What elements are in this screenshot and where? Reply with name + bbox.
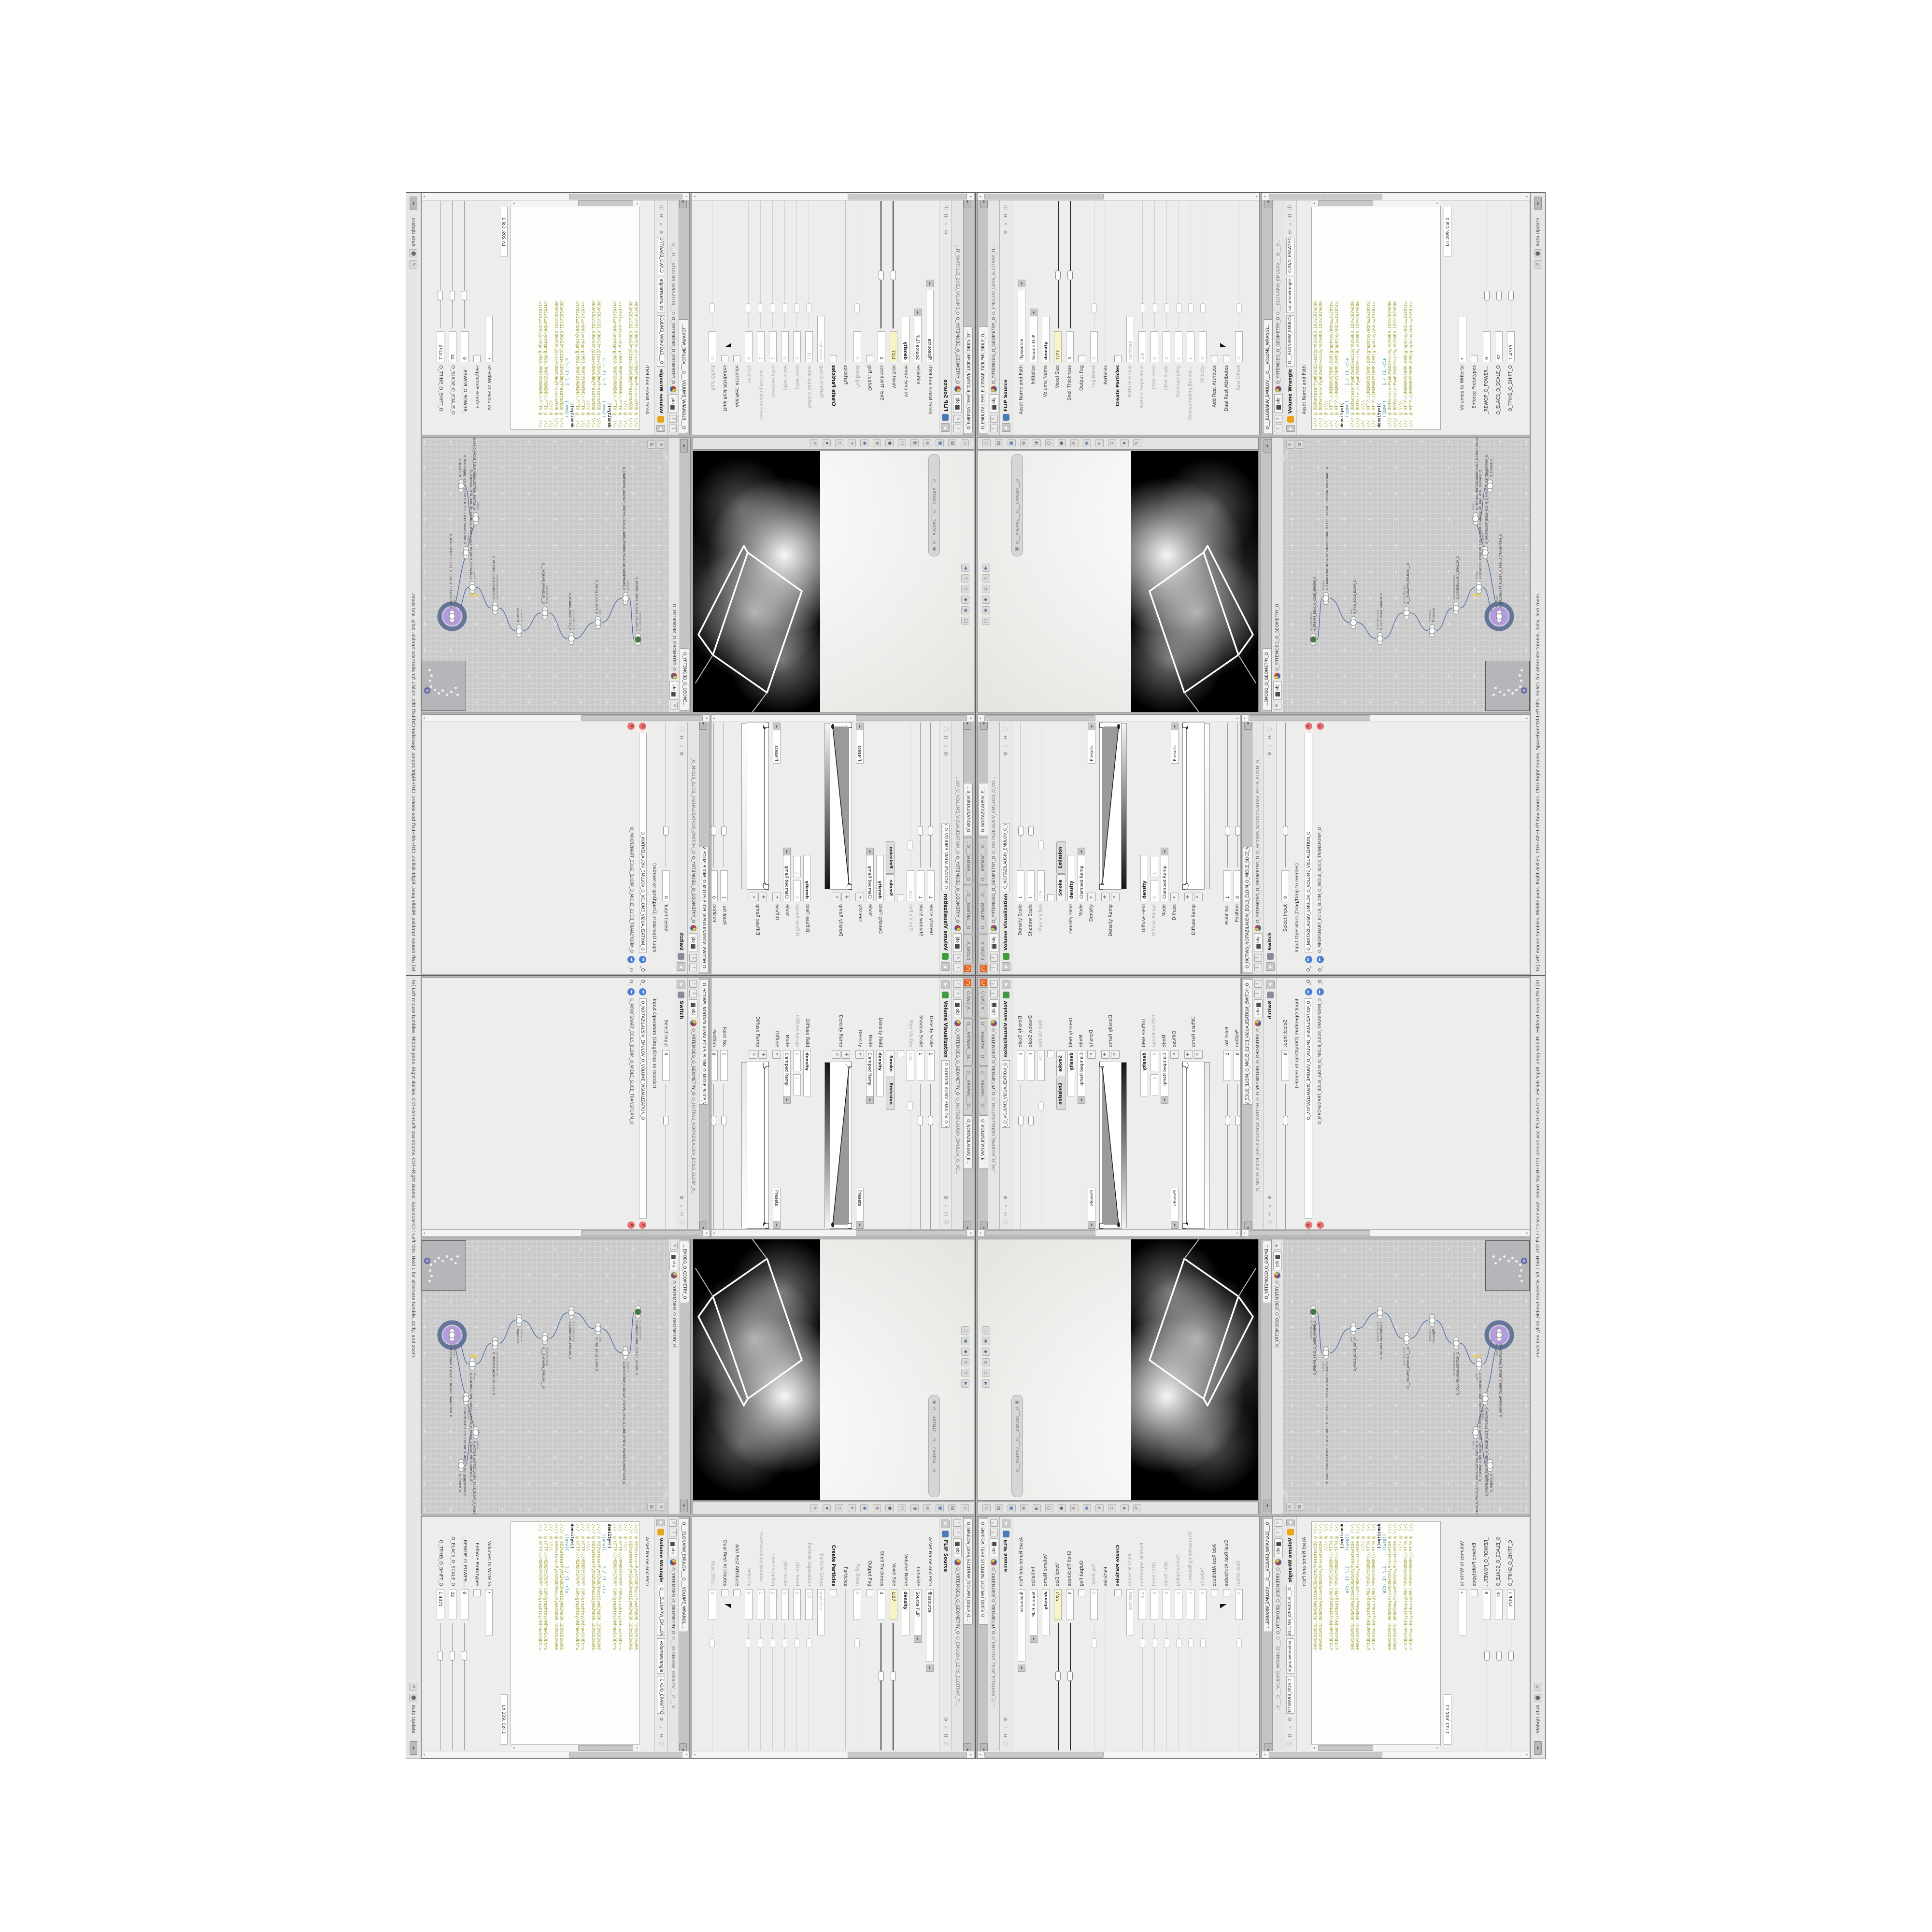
select-box-icon[interactable]: □ bbox=[962, 617, 970, 625]
ramp-expand-button[interactable]: ▸ bbox=[773, 1050, 781, 1059]
scrollbar-handle[interactable]: ::::: bbox=[856, 1230, 967, 1236]
network-node[interactable]: an_CubeSphereO_EREHPS_EBUC_O_CUBE_SPHERE… bbox=[1310, 576, 1317, 646]
path-geometry[interactable]: O_YRTEMOEG_O_GEOMETRY_O bbox=[672, 604, 677, 671]
node-name-field[interactable]: O_NOITAZILAUSIV_EMULOV_O_VO bbox=[1002, 824, 1010, 891]
nav-back-icon[interactable]: ⇧ bbox=[690, 980, 697, 988]
slider-handle[interactable] bbox=[746, 1638, 752, 1648]
parameter-field[interactable]: 128 bbox=[907, 870, 915, 901]
ramp-delete-point-button[interactable]: ✕ bbox=[1111, 893, 1120, 901]
parameter-field[interactable]: 1.4375 bbox=[1507, 1589, 1515, 1620]
magnifier-icon[interactable]: ⌕ bbox=[942, 221, 949, 227]
info-icon[interactable]: ⓘ bbox=[1003, 204, 1009, 211]
shade-sphere-icon[interactable]: ◑ bbox=[1033, 439, 1041, 447]
status-corner-button[interactable]: ◂▸ bbox=[1534, 197, 1542, 210]
slider-handle[interactable] bbox=[855, 303, 860, 313]
path-node[interactable]: O_HCTIWS_NOITAZILAUSIV_ECILS_ELDIM_O_ bbox=[1256, 758, 1261, 854]
parameter-field[interactable]: flipsource bbox=[1018, 290, 1025, 362]
scroll-up-icon[interactable]: ▴ bbox=[978, 193, 982, 200]
nav-forward-icon[interactable]: ⇩ bbox=[669, 1529, 677, 1536]
network-canvas[interactable]: Geometry⊙▤an_CubeSphereO_EREHPS_EBUC_O_C… bbox=[1283, 1239, 1530, 1514]
lock-icon[interactable]: ▣ bbox=[1008, 439, 1016, 447]
slider-handle[interactable] bbox=[918, 1116, 923, 1125]
slider-handle[interactable] bbox=[918, 826, 923, 836]
slider-handle[interactable] bbox=[438, 1651, 443, 1661]
parameter-slider[interactable] bbox=[794, 1623, 801, 1750]
parameter-checkbox[interactable] bbox=[1114, 355, 1122, 362]
list-move-button[interactable]: ⬅ bbox=[639, 988, 647, 995]
parameter-slider[interactable] bbox=[927, 723, 935, 867]
scrollbar-handle[interactable]: ::::: bbox=[1269, 1752, 1382, 1758]
parameter-field[interactable]: 32 bbox=[449, 331, 457, 362]
list-delete-button[interactable]: ✕ bbox=[1317, 723, 1324, 730]
network-context-tab[interactable]: obj bbox=[1274, 394, 1283, 413]
slider-handle[interactable] bbox=[711, 826, 717, 836]
vertical-scrollbar[interactable]: ▴▾::::: bbox=[692, 193, 974, 200]
slider-handle[interactable] bbox=[1055, 270, 1061, 280]
nav-forward-icon[interactable]: ⇩ bbox=[954, 415, 962, 423]
info-icon[interactable]: ⓘ bbox=[942, 204, 949, 211]
parameter-slider[interactable] bbox=[917, 723, 925, 867]
gear-icon[interactable]: ⚙ bbox=[678, 751, 684, 757]
list-item-name[interactable]: O_MROFSNART_ECILS_ELDIM_O_MIDLE_SLICE_TR… bbox=[627, 733, 635, 953]
parameter-slider[interactable] bbox=[449, 1623, 457, 1750]
orbit-sphere-icon[interactable]: ◉ bbox=[982, 606, 990, 614]
lamp-icon[interactable]: ○ bbox=[1045, 439, 1053, 447]
parameter-slider[interactable] bbox=[1187, 201, 1194, 328]
parameter-field[interactable]: 1 bbox=[1223, 1050, 1231, 1081]
pane-tab[interactable]: O_HCTIWS_NOITAZILAUSIV_ECILS_ELDIM_O_MID… bbox=[1243, 847, 1252, 972]
nav-back-icon[interactable]: ⇧ bbox=[954, 980, 962, 988]
network-node[interactable]: VolumeRasterizeO_EZIRETSAR_EMULOV_O bbox=[1377, 593, 1383, 645]
scrollbar-handle[interactable]: ::::: bbox=[569, 1752, 682, 1758]
pane-tab[interactable]: O___ELGNARW_EMULOV___O___VOLUME_WRANGL..… bbox=[679, 319, 688, 433]
slider-handle[interactable] bbox=[462, 291, 468, 300]
parameter-checkbox[interactable] bbox=[733, 355, 740, 362]
parameter-field[interactable]: density bbox=[1042, 316, 1050, 362]
path-geometry[interactable]: O_YRTEMOEG_O_GEOMETRY_O bbox=[992, 317, 996, 384]
flipbook-icon[interactable]: ▸ bbox=[848, 1504, 856, 1512]
gear-icon[interactable]: ⚙ bbox=[1287, 1716, 1293, 1722]
orbit-sphere-icon[interactable]: ◉ bbox=[962, 606, 970, 614]
slider-handle[interactable] bbox=[908, 1101, 913, 1111]
parameter-slider[interactable] bbox=[721, 723, 728, 867]
network-context-tab[interactable]: obj bbox=[1273, 1251, 1282, 1270]
folder-tab[interactable]: Smoke bbox=[1056, 874, 1065, 901]
network-context-tab[interactable]: obj bbox=[670, 1251, 679, 1270]
code-scrollbar[interactable]: ▴▾::::: bbox=[1311, 200, 1440, 207]
nav-forward-icon[interactable]: ⇩ bbox=[990, 1529, 998, 1536]
slider-handle[interactable] bbox=[1092, 1638, 1097, 1648]
scrollbar-handle[interactable]: ::::: bbox=[984, 715, 1095, 721]
slider-handle[interactable] bbox=[1283, 1116, 1288, 1125]
path-node[interactable]: O___ELGNARW_EMULOV___O___V... bbox=[1276, 240, 1281, 315]
slider-handle[interactable] bbox=[1188, 303, 1193, 313]
info-icon[interactable]: ⓘ bbox=[1287, 1741, 1293, 1747]
cube-icon[interactable]: ◆ bbox=[962, 596, 970, 604]
folder-tab[interactable]: Emission bbox=[1056, 841, 1065, 874]
pane-tab[interactable]: O___ARTNAM___O... bbox=[964, 886, 973, 933]
magnifier-icon[interactable]: ⌕ bbox=[942, 742, 949, 749]
parameter-checkbox[interactable] bbox=[897, 894, 904, 901]
network-context-tab[interactable]: obj bbox=[689, 999, 698, 1018]
pane-tab[interactable]: O___ELGNARW_EMULOV___O___VOLUME_WRANGL..… bbox=[1263, 1518, 1272, 1632]
scroll-up-icon[interactable]: ▴ bbox=[978, 715, 982, 722]
path-node[interactable]: O_NOITAZILAUSIV_EMULOV_O_VO... bbox=[955, 777, 960, 854]
houdini-icon[interactable]: H bbox=[1267, 1211, 1273, 1217]
pane-maximize-icon[interactable]: ✥ bbox=[670, 702, 678, 710]
parameter-field[interactable]: 6 bbox=[1483, 331, 1491, 362]
network-node[interactable]: an_CubeSphereO_EREHPS_EBUC_O_CUBE_SPHERE… bbox=[635, 576, 641, 646]
parameter-field[interactable]: 1 bbox=[1027, 870, 1035, 901]
gear-icon[interactable]: ⚙ bbox=[942, 1194, 949, 1201]
slider-handle[interactable] bbox=[1152, 303, 1157, 313]
magnifier-icon[interactable]: ⌕ bbox=[942, 1724, 949, 1731]
scroll-down-icon[interactable]: ▾ bbox=[711, 1230, 716, 1236]
parameter-slider[interactable] bbox=[1151, 201, 1158, 328]
pane-tab[interactable]: C:/O/O_A... bbox=[964, 987, 973, 1017]
folder-tab[interactable]: Smoke bbox=[886, 1050, 895, 1077]
cancel-icon[interactable]: ⊗ bbox=[923, 439, 931, 447]
pane-tab[interactable]: C:/O/O_A... bbox=[979, 934, 988, 964]
camera-selector-pill[interactable]: ▣O___AREMAC___O___CAMERA___O bbox=[928, 454, 940, 556]
parameter-field[interactable]: 0 bbox=[1151, 331, 1158, 362]
parameter-slider[interactable] bbox=[878, 1623, 886, 1750]
bullseye-icon[interactable]: ⊙ bbox=[982, 1358, 990, 1366]
parameter-field[interactable]: 0 bbox=[1090, 331, 1098, 362]
parameter-field[interactable]: 3 bbox=[1066, 1589, 1074, 1620]
slider-handle[interactable] bbox=[1484, 291, 1490, 300]
parameter-field[interactable]: 0 bbox=[745, 1589, 753, 1620]
parameter-field[interactable]: 1 bbox=[1187, 331, 1194, 362]
scrollbar-handle[interactable]: ::::: bbox=[578, 200, 633, 206]
slider-handle[interactable] bbox=[782, 303, 788, 313]
quality-icon[interactable]: ⊕ bbox=[1070, 1504, 1079, 1512]
select-box-icon[interactable]: □ bbox=[982, 1326, 990, 1335]
parameter-field[interactable]: 1 bbox=[1017, 870, 1024, 901]
ramp-add-point-button[interactable]: ✚ bbox=[1101, 1050, 1110, 1059]
scroll-down-icon[interactable]: ▾ bbox=[1525, 1230, 1530, 1236]
houdini-icon[interactable]: H bbox=[1003, 734, 1009, 740]
ramp-add-point-button[interactable]: ✚ bbox=[758, 1050, 767, 1059]
nav-back-icon[interactable]: ⇧ bbox=[669, 425, 677, 432]
slider-handle[interactable] bbox=[1164, 303, 1169, 313]
parameter-checkbox[interactable] bbox=[1223, 1589, 1230, 1596]
parameter-slider[interactable] bbox=[769, 201, 777, 328]
network-context-tab[interactable]: obj bbox=[953, 933, 962, 952]
parameter-field[interactable]: 3 bbox=[878, 1589, 886, 1620]
gear-icon[interactable]: ⚙ bbox=[678, 1194, 684, 1201]
pen-icon[interactable]: ✎ bbox=[1133, 1504, 1141, 1512]
scroll-down-icon[interactable]: ▾ bbox=[692, 1751, 697, 1758]
scroll-up-icon[interactable]: ▴ bbox=[705, 1230, 710, 1236]
parameter-checkbox[interactable] bbox=[733, 1589, 740, 1596]
ramp-expand-button[interactable]: ▸ bbox=[856, 1050, 865, 1059]
nav-forward-icon[interactable]: ⇩ bbox=[990, 954, 998, 962]
vertical-scrollbar[interactable]: ▴▾::::: bbox=[422, 1229, 710, 1236]
scroll-down-icon[interactable]: ▾ bbox=[1235, 715, 1240, 722]
network-node[interactable]: FlipSourceflipsource bbox=[516, 608, 523, 637]
list-delete-button[interactable]: ✕ bbox=[628, 723, 635, 730]
parameter-field[interactable]: 0 bbox=[1234, 870, 1241, 901]
parameter-field[interactable]: 0 bbox=[794, 331, 801, 362]
scroll-down-icon[interactable]: ▾ bbox=[1254, 193, 1259, 200]
ramp-widget[interactable] bbox=[747, 1062, 769, 1229]
slider-handle[interactable] bbox=[1176, 303, 1181, 313]
parameter-field[interactable]: 1 bbox=[1187, 1589, 1194, 1620]
list-move-button[interactable]: ⬅ bbox=[628, 956, 635, 963]
parameter-slider[interactable] bbox=[662, 723, 670, 867]
scrollbar-handle[interactable]: ::::: bbox=[1249, 1230, 1370, 1236]
parameter-field[interactable]: 128 bbox=[1037, 870, 1045, 901]
network-node[interactable]: VolumeWrangleO___ELGNARW_EMULOV___O bbox=[541, 1332, 548, 1389]
magnifier-icon[interactable]: ⌕ bbox=[678, 742, 684, 749]
scroll-down-icon[interactable]: ▾ bbox=[511, 1745, 516, 1751]
parameter-field[interactable]: 1/9 bbox=[806, 331, 813, 362]
parameter-field[interactable]: 0 bbox=[854, 331, 862, 362]
parameter-field[interactable]: 32 bbox=[449, 1589, 457, 1620]
folder-tab[interactable]: Smoke bbox=[886, 874, 895, 901]
vertical-scrollbar[interactable]: ▴▾::::: bbox=[692, 1751, 974, 1758]
parameter-checkbox[interactable] bbox=[830, 1589, 837, 1596]
network-canvas[interactable]: Geometry⊙▤an_CubeSphereO_EREHPS_EBUC_O_C… bbox=[422, 438, 668, 712]
lamp-icon[interactable]: ○ bbox=[898, 439, 906, 447]
parameter-field[interactable]: 1 bbox=[1017, 1050, 1024, 1081]
list-delete-button[interactable]: ✕ bbox=[1305, 1222, 1312, 1229]
parameter-field[interactable]: density bbox=[902, 316, 910, 362]
houdini-icon[interactable]: H bbox=[678, 1211, 684, 1217]
parameter-menu[interactable]: Source FLIP◂▸ bbox=[914, 1589, 922, 1643]
network-node[interactable]: PolyWireO_EMARFERIW_NOGYLOP_EREHPS_EBUC_… bbox=[1322, 1347, 1329, 1484]
slider-handle[interactable] bbox=[1152, 1638, 1157, 1648]
parameter-field[interactable]: 1 bbox=[917, 1050, 925, 1081]
ramp-add-point-button[interactable]: ✚ bbox=[841, 1050, 850, 1059]
vertical-scrollbar[interactable]: ▴▾::::: bbox=[422, 1751, 689, 1758]
slider-handle[interactable] bbox=[795, 1638, 800, 1648]
parameter-slider[interactable] bbox=[1495, 1623, 1503, 1750]
ramp-widget[interactable] bbox=[747, 723, 769, 890]
parameter-field[interactable]: density bbox=[902, 1589, 910, 1635]
code-file-tab[interactable]: C:/O/O_ERAWTFOS_... bbox=[1286, 238, 1294, 275]
pane-tab[interactable]: O___ELGNARW_EMULOV___O___VOLUME_WRANGL..… bbox=[1263, 319, 1272, 433]
code-file-tab[interactable]: C:/O/O_ERAWTFOS_... bbox=[1286, 1676, 1294, 1714]
scroll-down-icon[interactable]: ▾ bbox=[422, 1751, 426, 1758]
houdini-icon[interactable]: H bbox=[1267, 734, 1273, 740]
network-context-tab[interactable]: obj bbox=[953, 394, 962, 413]
scroll-down-icon[interactable]: ▾ bbox=[1435, 1745, 1440, 1751]
pane-tab[interactable]: O_EMULOV_LEHS_ELCITRAP_TICILPMI_DIULF_O.… bbox=[979, 327, 988, 433]
vex-code-editor[interactable]: //// @ 0D3%steserPym62%0D3%eziSym62%000.… bbox=[1311, 206, 1441, 430]
collapse-arrow-icon[interactable]: ▶ bbox=[1002, 962, 1010, 971]
spiral-icon[interactable] bbox=[964, 979, 971, 986]
vertical-scrollbar[interactable]: ▴▾::::: bbox=[978, 1751, 1259, 1758]
parameter-slider[interactable] bbox=[437, 1623, 445, 1750]
parameter-menu[interactable]: Clamped Ramp◂▸ bbox=[1078, 848, 1085, 901]
nav-forward-icon[interactable]: ⇩ bbox=[1275, 415, 1282, 423]
vex-code-editor[interactable]: //// @ 0D3%steserPym62%0D3%eziSym62%000.… bbox=[1311, 1521, 1441, 1746]
pane-tab[interactable]: ...EMOEG_O_GEOMETRY_O bbox=[1262, 1241, 1271, 1303]
path-node[interactable]: O_EMULOV_LEHS_ELCITRAP_TI... bbox=[992, 1636, 996, 1706]
snapshot-icon[interactable]: ▤ bbox=[995, 1504, 1003, 1512]
scroll-down-icon[interactable]: ▾ bbox=[1235, 1230, 1240, 1236]
node-name-field[interactable]: O___ELGNARW_EMULOV____O bbox=[657, 1585, 665, 1636]
ramp-add-point-button[interactable]: ✚ bbox=[1184, 1050, 1193, 1059]
parameter-checkbox[interactable] bbox=[1211, 355, 1218, 362]
vertical-scrollbar[interactable]: ▴▾::::: bbox=[422, 715, 710, 722]
path-geometry[interactable]: O_YRTEMOEG_O_GEOMETRY_O bbox=[671, 317, 676, 384]
gear-icon[interactable]: ⚙ bbox=[658, 1716, 664, 1722]
parameter-slider[interactable] bbox=[1163, 201, 1170, 328]
parameter-field[interactable]: density bbox=[1140, 855, 1148, 901]
parameter-field[interactable]: 1 bbox=[927, 870, 935, 901]
ramp-add-point-button[interactable]: ✚ bbox=[841, 893, 850, 901]
parameter-slider[interactable] bbox=[854, 1623, 862, 1750]
parameter-menu[interactable]: Clamped Ramp◂▸ bbox=[867, 848, 874, 901]
select-box-icon[interactable]: □ bbox=[982, 617, 990, 625]
presets-menu[interactable]: Presets◂▸ bbox=[1088, 1188, 1095, 1229]
refresh-icon[interactable]: ↺ bbox=[410, 1683, 418, 1691]
parameter-slider[interactable] bbox=[757, 1623, 765, 1750]
magnifier-icon[interactable]: ⌕ bbox=[1003, 742, 1009, 749]
scrollbar-handle[interactable]: ::::: bbox=[1269, 194, 1382, 199]
slider-handle[interactable] bbox=[1018, 1116, 1023, 1125]
slider-handle[interactable] bbox=[438, 291, 443, 300]
scroll-up-icon[interactable]: ▴ bbox=[969, 1751, 974, 1758]
range-max-field[interactable]: 1 bbox=[794, 1074, 801, 1095]
slider-handle[interactable] bbox=[1236, 303, 1242, 313]
pane-split-button[interactable]: ◂▸ bbox=[680, 1499, 688, 1512]
gear-icon[interactable]: ⚙ bbox=[942, 229, 949, 235]
parameter-slider[interactable] bbox=[757, 201, 765, 328]
ramp-expand-button[interactable]: ▸ bbox=[1087, 1050, 1096, 1059]
path-node[interactable]: O_EMULOV_LEHS_ELCITRAP_TI... bbox=[992, 245, 996, 315]
vex-code-editor[interactable]: //// @ 0D3%steserPym62%0D3%eziSym62%000.… bbox=[511, 1521, 640, 1746]
parameter-field[interactable]: 3 bbox=[878, 331, 886, 362]
parameter-slider[interactable] bbox=[806, 1623, 813, 1750]
info-icon[interactable]: ⓘ bbox=[1003, 726, 1009, 732]
folder-tab[interactable]: Emission bbox=[886, 1078, 895, 1110]
network-node[interactable]: VolumeVisualizationO_NOITAZILAUSIV_EMULO… bbox=[492, 556, 498, 614]
slider-handle[interactable] bbox=[1038, 1101, 1044, 1111]
parameter-field[interactable]: * bbox=[1459, 316, 1466, 362]
parameter-checkbox[interactable] bbox=[1471, 1589, 1478, 1596]
ramp-widget[interactable] bbox=[1099, 723, 1122, 890]
scroll-down-icon[interactable]: ▾ bbox=[711, 715, 716, 722]
cancel-icon[interactable]: ⊗ bbox=[923, 1504, 931, 1512]
presets-menu[interactable]: Presets◂▸ bbox=[1088, 723, 1095, 764]
cancel-icon[interactable]: ⊗ bbox=[1020, 439, 1028, 447]
parameter-slider[interactable] bbox=[1017, 723, 1024, 867]
select-box-icon[interactable]: □ bbox=[962, 1326, 970, 1335]
info-icon[interactable]: ⓘ bbox=[658, 1741, 664, 1747]
node-name-field-2[interactable]: volumewrangle bbox=[657, 1638, 665, 1674]
parameter-slider[interactable] bbox=[1138, 1623, 1146, 1750]
field-menu-button[interactable]: ◂▸ bbox=[926, 280, 934, 287]
ramp-delete-point-button[interactable]: ✕ bbox=[1194, 893, 1203, 901]
ramp-widget[interactable] bbox=[830, 723, 852, 890]
update-mode-label[interactable]: Auto Update bbox=[411, 218, 416, 246]
slider-handle[interactable] bbox=[1235, 826, 1240, 836]
parameter-slider[interactable] bbox=[1151, 1623, 1158, 1750]
network-context-tab[interactable]: obj bbox=[670, 681, 679, 700]
ramp-delete-point-button[interactable]: ✕ bbox=[749, 893, 757, 901]
node-name-field[interactable]: O___ELGNARW_EMULOV____O bbox=[657, 315, 665, 367]
parameter-slider[interactable] bbox=[461, 1623, 469, 1750]
parameter-checkbox[interactable] bbox=[1223, 355, 1230, 362]
parameter-slider[interactable] bbox=[878, 201, 886, 328]
parameter-menu[interactable]: Clamped Ramp◂▸ bbox=[1161, 848, 1168, 901]
slider-handle[interactable] bbox=[1140, 303, 1145, 313]
slider-handle[interactable] bbox=[1176, 1638, 1181, 1648]
path-geometry[interactable]: O_YRTEMOEG_O_GEOMETRY_O bbox=[955, 1028, 960, 1095]
ramp-widget[interactable] bbox=[1182, 723, 1205, 890]
slider-handle[interactable] bbox=[663, 826, 668, 836]
shade-sphere-icon[interactable]: ◑ bbox=[910, 1504, 919, 1512]
parameter-field[interactable]: * bbox=[485, 1589, 493, 1635]
parameter-slider[interactable] bbox=[1507, 201, 1515, 328]
slider-handle[interactable] bbox=[1508, 1651, 1514, 1661]
list-item-name[interactable]: O_NOITAZILAUSIV_EMULOV_O_VOLUME_VISUALIZ… bbox=[1305, 733, 1312, 953]
presets-menu[interactable]: Presets◂▸ bbox=[856, 1188, 864, 1229]
vertical-scrollbar[interactable]: ▴▾::::: bbox=[1262, 1751, 1530, 1758]
parameter-field[interactable]: * bbox=[1459, 1589, 1466, 1635]
slider-handle[interactable] bbox=[710, 1638, 715, 1648]
slider-handle[interactable] bbox=[879, 270, 884, 280]
parameter-field[interactable]: density bbox=[1067, 1050, 1075, 1096]
scroll-up-icon[interactable]: ▴ bbox=[705, 715, 710, 722]
parameter-slider[interactable] bbox=[1175, 201, 1182, 328]
node-name-field[interactable]: O_NOITAZILAUSIV_EMULOV_O_VO bbox=[941, 824, 950, 891]
network-context-tab[interactable]: obj bbox=[1273, 681, 1282, 700]
parameter-slider[interactable] bbox=[461, 201, 469, 328]
network-node[interactable]: NullO_TUO_ECILS_ELDIM_O bbox=[1350, 1322, 1357, 1371]
ramp-expand-button[interactable]: ▸ bbox=[1087, 893, 1096, 901]
camera-lock-icon[interactable]: ▣ bbox=[929, 547, 939, 551]
ramp-delete-point-button[interactable]: ✕ bbox=[1194, 1050, 1203, 1059]
field-menu-button[interactable]: ◂▸ bbox=[1018, 1664, 1025, 1672]
scroll-up-icon[interactable]: ▴ bbox=[684, 1751, 689, 1758]
parameter-field[interactable]: 1/27 bbox=[890, 331, 898, 362]
path-node[interactable]: O_NOITAZILAUSIV_EMULOV_O_VO... bbox=[955, 1097, 960, 1175]
parameter-checkbox[interactable] bbox=[897, 1050, 904, 1057]
parameter-menu[interactable]: Clamped Ramp◂▸ bbox=[783, 1050, 791, 1104]
pane-split-button[interactable]: ◂▸ bbox=[1264, 1499, 1271, 1512]
node-name-field[interactable]: O___ELGNARW_EMULOV____O bbox=[1286, 1585, 1294, 1636]
pane-tab[interactable]: C:/O/O_A... bbox=[964, 934, 973, 964]
cancel-icon[interactable]: ⊗ bbox=[1020, 1504, 1028, 1512]
parameter-field[interactable]: 0 bbox=[781, 331, 789, 362]
collapse-arrow-icon[interactable]: ▶ bbox=[1002, 423, 1010, 432]
parameter-field[interactable]: 0 bbox=[1163, 331, 1170, 362]
parameter-slider[interactable] bbox=[1066, 201, 1074, 328]
parameter-field[interactable]: 6 bbox=[461, 331, 469, 362]
network-node[interactable]: VolumeRasterizeO_EZIRETSAR_EMULOV_O bbox=[568, 1307, 575, 1359]
list-move-button[interactable]: ⬅ bbox=[1317, 988, 1324, 995]
collapse-arrow-icon[interactable]: ▶ bbox=[1266, 962, 1275, 971]
slider-handle[interactable] bbox=[782, 1638, 788, 1648]
snapshot-icon[interactable]: ▤ bbox=[948, 439, 956, 447]
path-geometry[interactable]: O_YRTEMOEG_O_GEOMETRY_O bbox=[691, 1028, 696, 1095]
parameter-checkbox[interactable] bbox=[866, 1589, 873, 1596]
network-context-tab[interactable]: obj bbox=[1254, 999, 1263, 1018]
parameter-slider[interactable] bbox=[437, 201, 445, 328]
nav-forward-icon[interactable]: ⇩ bbox=[669, 415, 677, 423]
parameter-field[interactable]: 0 bbox=[1234, 1050, 1241, 1081]
code-scrollbar[interactable]: ▴▾::::: bbox=[511, 1744, 640, 1751]
parameter-checkbox[interactable] bbox=[473, 355, 481, 362]
parameter-slider[interactable] bbox=[907, 1084, 915, 1229]
parameter-slider[interactable] bbox=[1223, 723, 1231, 867]
path-geometry[interactable]: O_YRTEMOEG_O_GEOMETRY_O bbox=[672, 1280, 677, 1348]
